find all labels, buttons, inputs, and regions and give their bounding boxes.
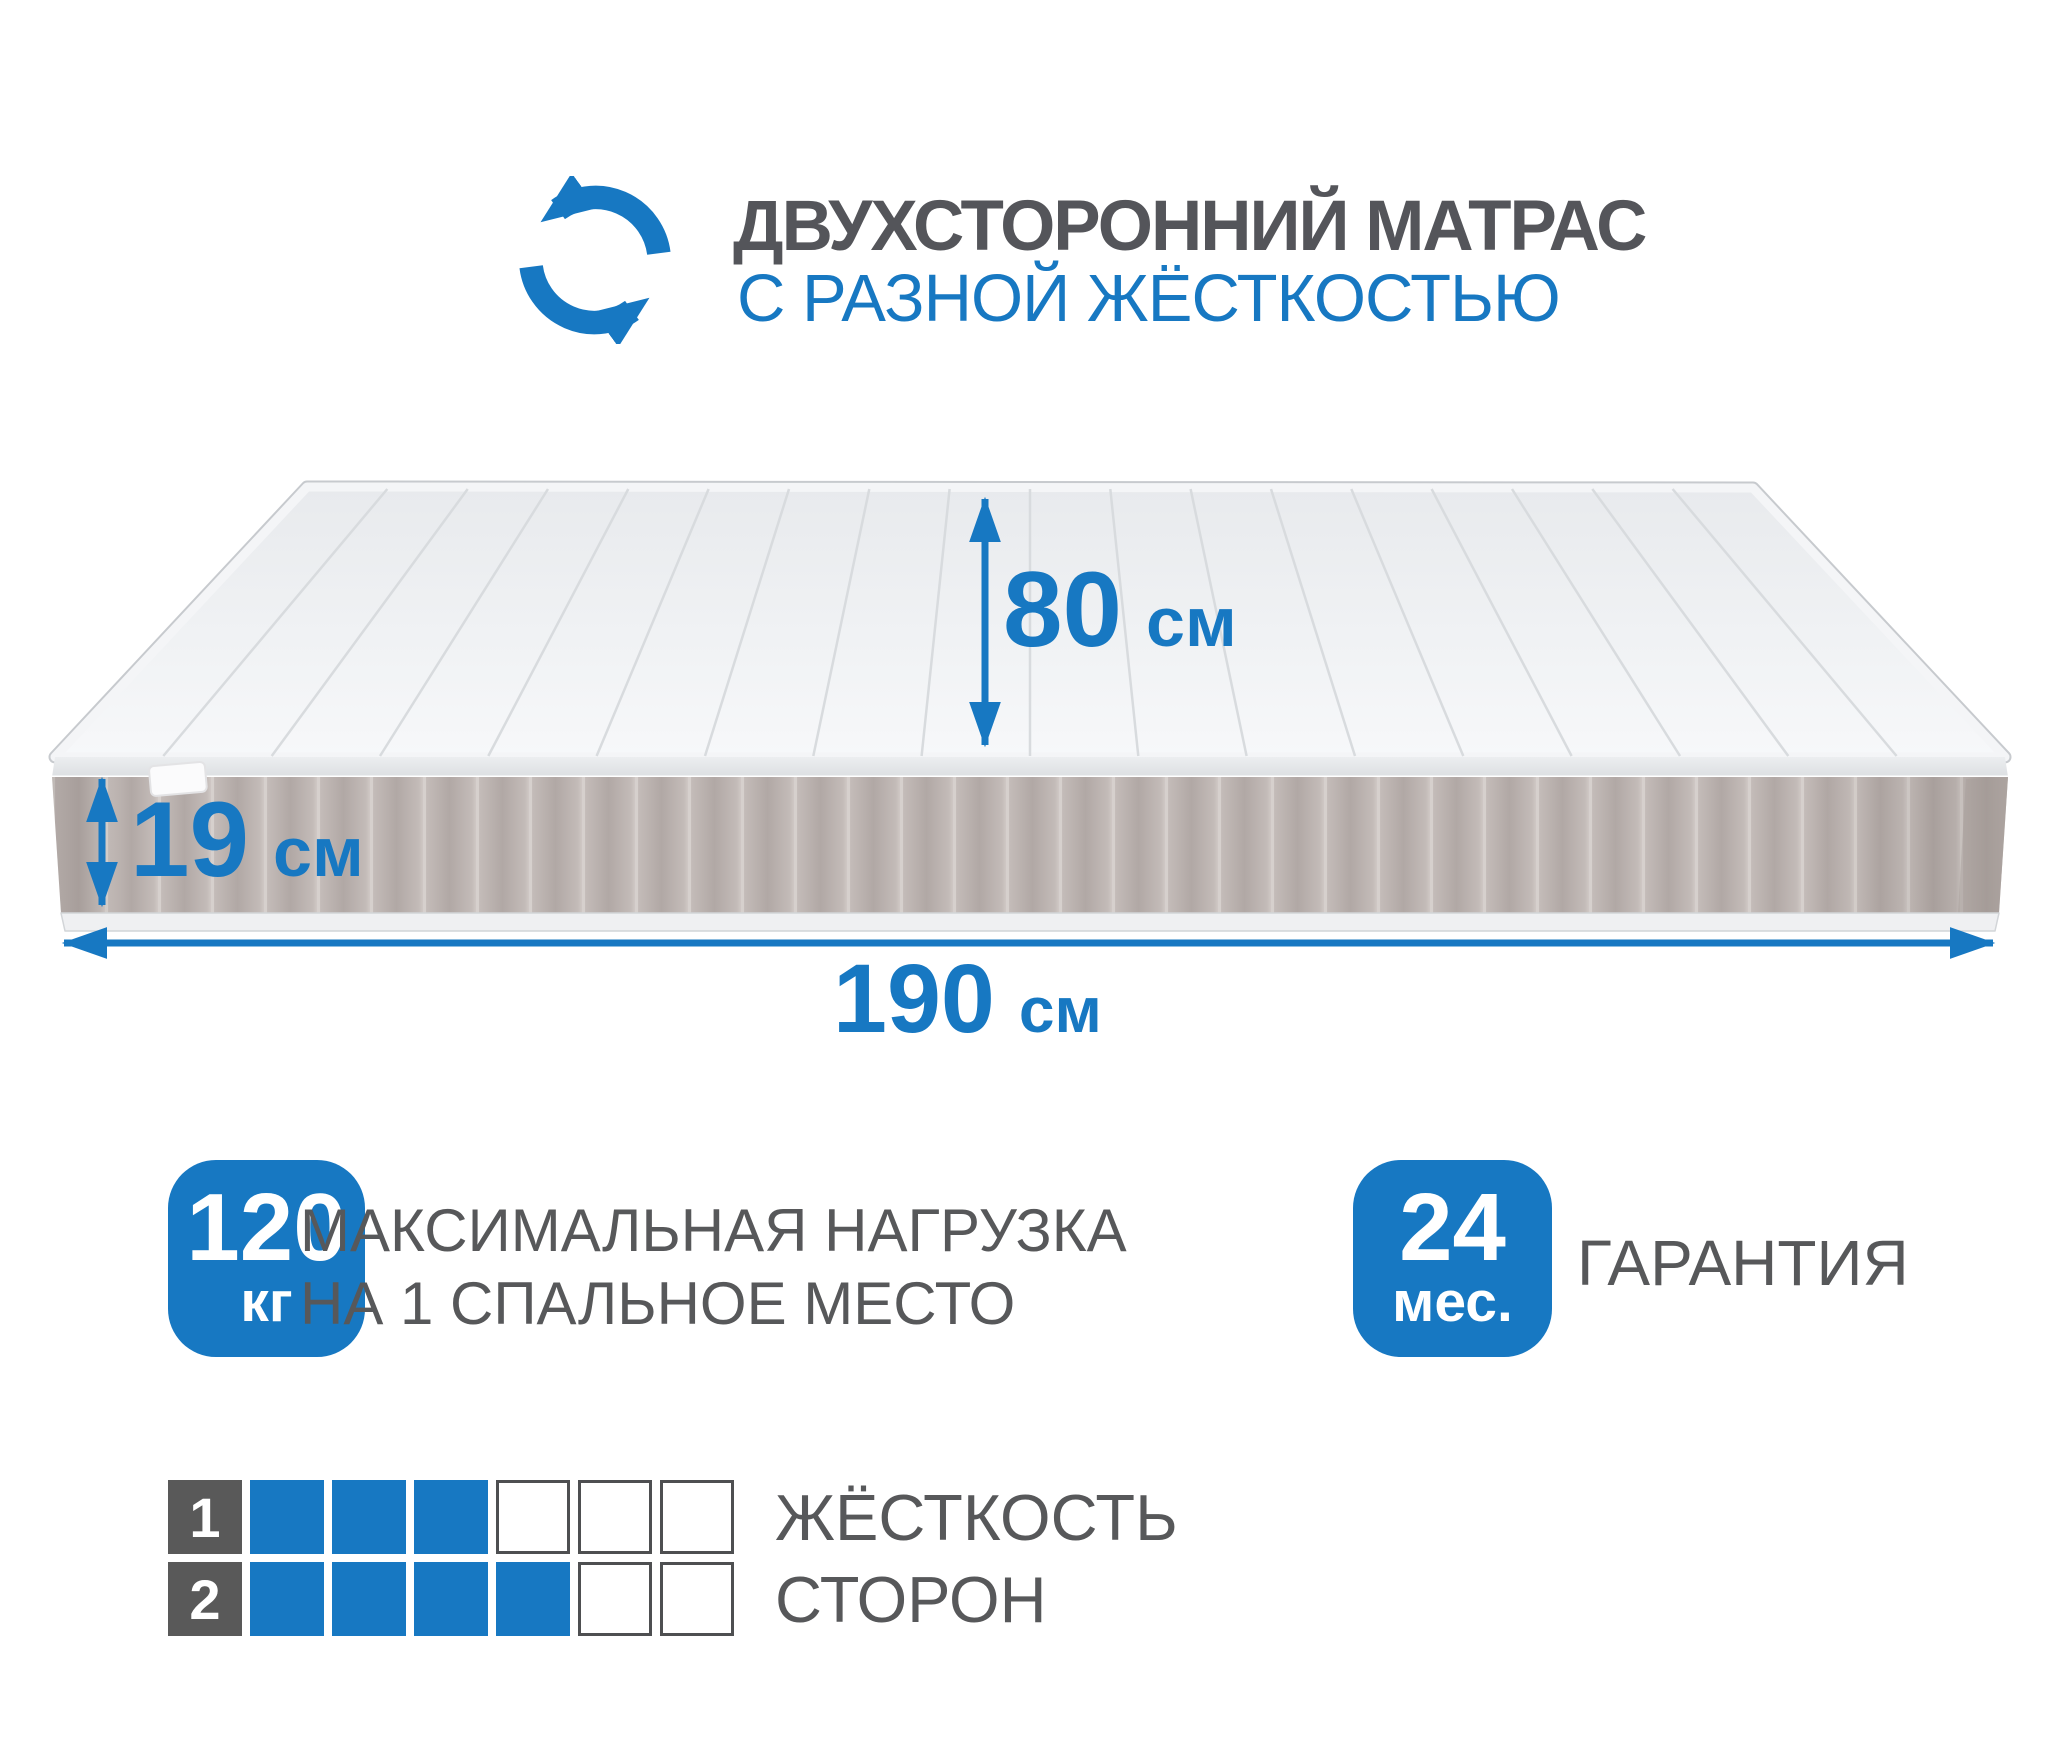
length-dimension-label: 190см bbox=[833, 950, 1102, 1047]
mattress-right-face bbox=[1958, 777, 2008, 913]
hardness-row-2-cell-1 bbox=[250, 1562, 324, 1636]
rotate-arrows-icon bbox=[505, 176, 685, 344]
hardness-row-2-cell-4 bbox=[496, 1562, 570, 1636]
mattress-edge-band bbox=[52, 757, 2008, 777]
hardness-scale: 12 bbox=[168, 1480, 734, 1636]
hardness-row-1-cell-3 bbox=[414, 1480, 488, 1554]
width-unit: см bbox=[1146, 583, 1237, 661]
max-load-caption: МАКСИМАЛЬНАЯ НАГРУЗКА НА 1 СПАЛЬНОЕ МЕСТ… bbox=[300, 1194, 1127, 1340]
hardness-row-1-cell-6 bbox=[660, 1480, 734, 1554]
hardness-caption-line1: ЖЁСТКОСТЬ bbox=[775, 1480, 1178, 1554]
hardness-row-2-cell-5 bbox=[578, 1562, 652, 1636]
title-line2: С РАЗНОЙ ЖЁСТКОСТЬЮ bbox=[737, 260, 1560, 337]
hardness-row-1-cell-5 bbox=[578, 1480, 652, 1554]
warranty-value: 24 bbox=[1399, 1184, 1506, 1272]
width-dimension-label: 80см bbox=[1003, 556, 1237, 663]
length-value: 190 bbox=[833, 944, 995, 1053]
height-value: 19 bbox=[130, 779, 249, 899]
max-load-unit: кг bbox=[240, 1273, 292, 1333]
warranty-badge: 24 мес. bbox=[1353, 1160, 1552, 1357]
max-load-caption-line1: МАКСИМАЛЬНАЯ НАГРУЗКА bbox=[300, 1194, 1127, 1267]
width-value: 80 bbox=[1003, 549, 1122, 669]
hardness-row-2-cell-3 bbox=[414, 1562, 488, 1636]
mattress-infographic: ДВУХСТОРОННИЙ МАТРАС С РАЗНОЙ ЖЁСТКОСТЬЮ… bbox=[0, 0, 2048, 1757]
warranty-unit: мес. bbox=[1392, 1273, 1513, 1333]
hardness-row-1-label: 1 bbox=[168, 1480, 242, 1554]
hardness-row-1-cell-1 bbox=[250, 1480, 324, 1554]
hardness-row-2-cell-2 bbox=[332, 1562, 406, 1636]
length-unit: см bbox=[1019, 974, 1102, 1046]
warranty-caption: ГАРАНТИЯ bbox=[1577, 1226, 1909, 1300]
height-dimension-label: 19см bbox=[130, 786, 364, 893]
title-line1: ДВУХСТОРОННИЙ МАТРАС bbox=[733, 186, 1645, 267]
mattress-bottom-piping bbox=[61, 913, 1999, 931]
hardness-caption-line2: СТОРОН bbox=[775, 1562, 1047, 1636]
hardness-row-2-cell-6 bbox=[660, 1562, 734, 1636]
hardness-row-1-cell-2 bbox=[332, 1480, 406, 1554]
max-load-caption-line2: НА 1 СПАЛЬНОЕ МЕСТО bbox=[300, 1267, 1127, 1340]
hardness-row-2-label: 2 bbox=[168, 1562, 242, 1636]
hardness-row-1-cell-4 bbox=[496, 1480, 570, 1554]
height-unit: см bbox=[273, 813, 364, 891]
